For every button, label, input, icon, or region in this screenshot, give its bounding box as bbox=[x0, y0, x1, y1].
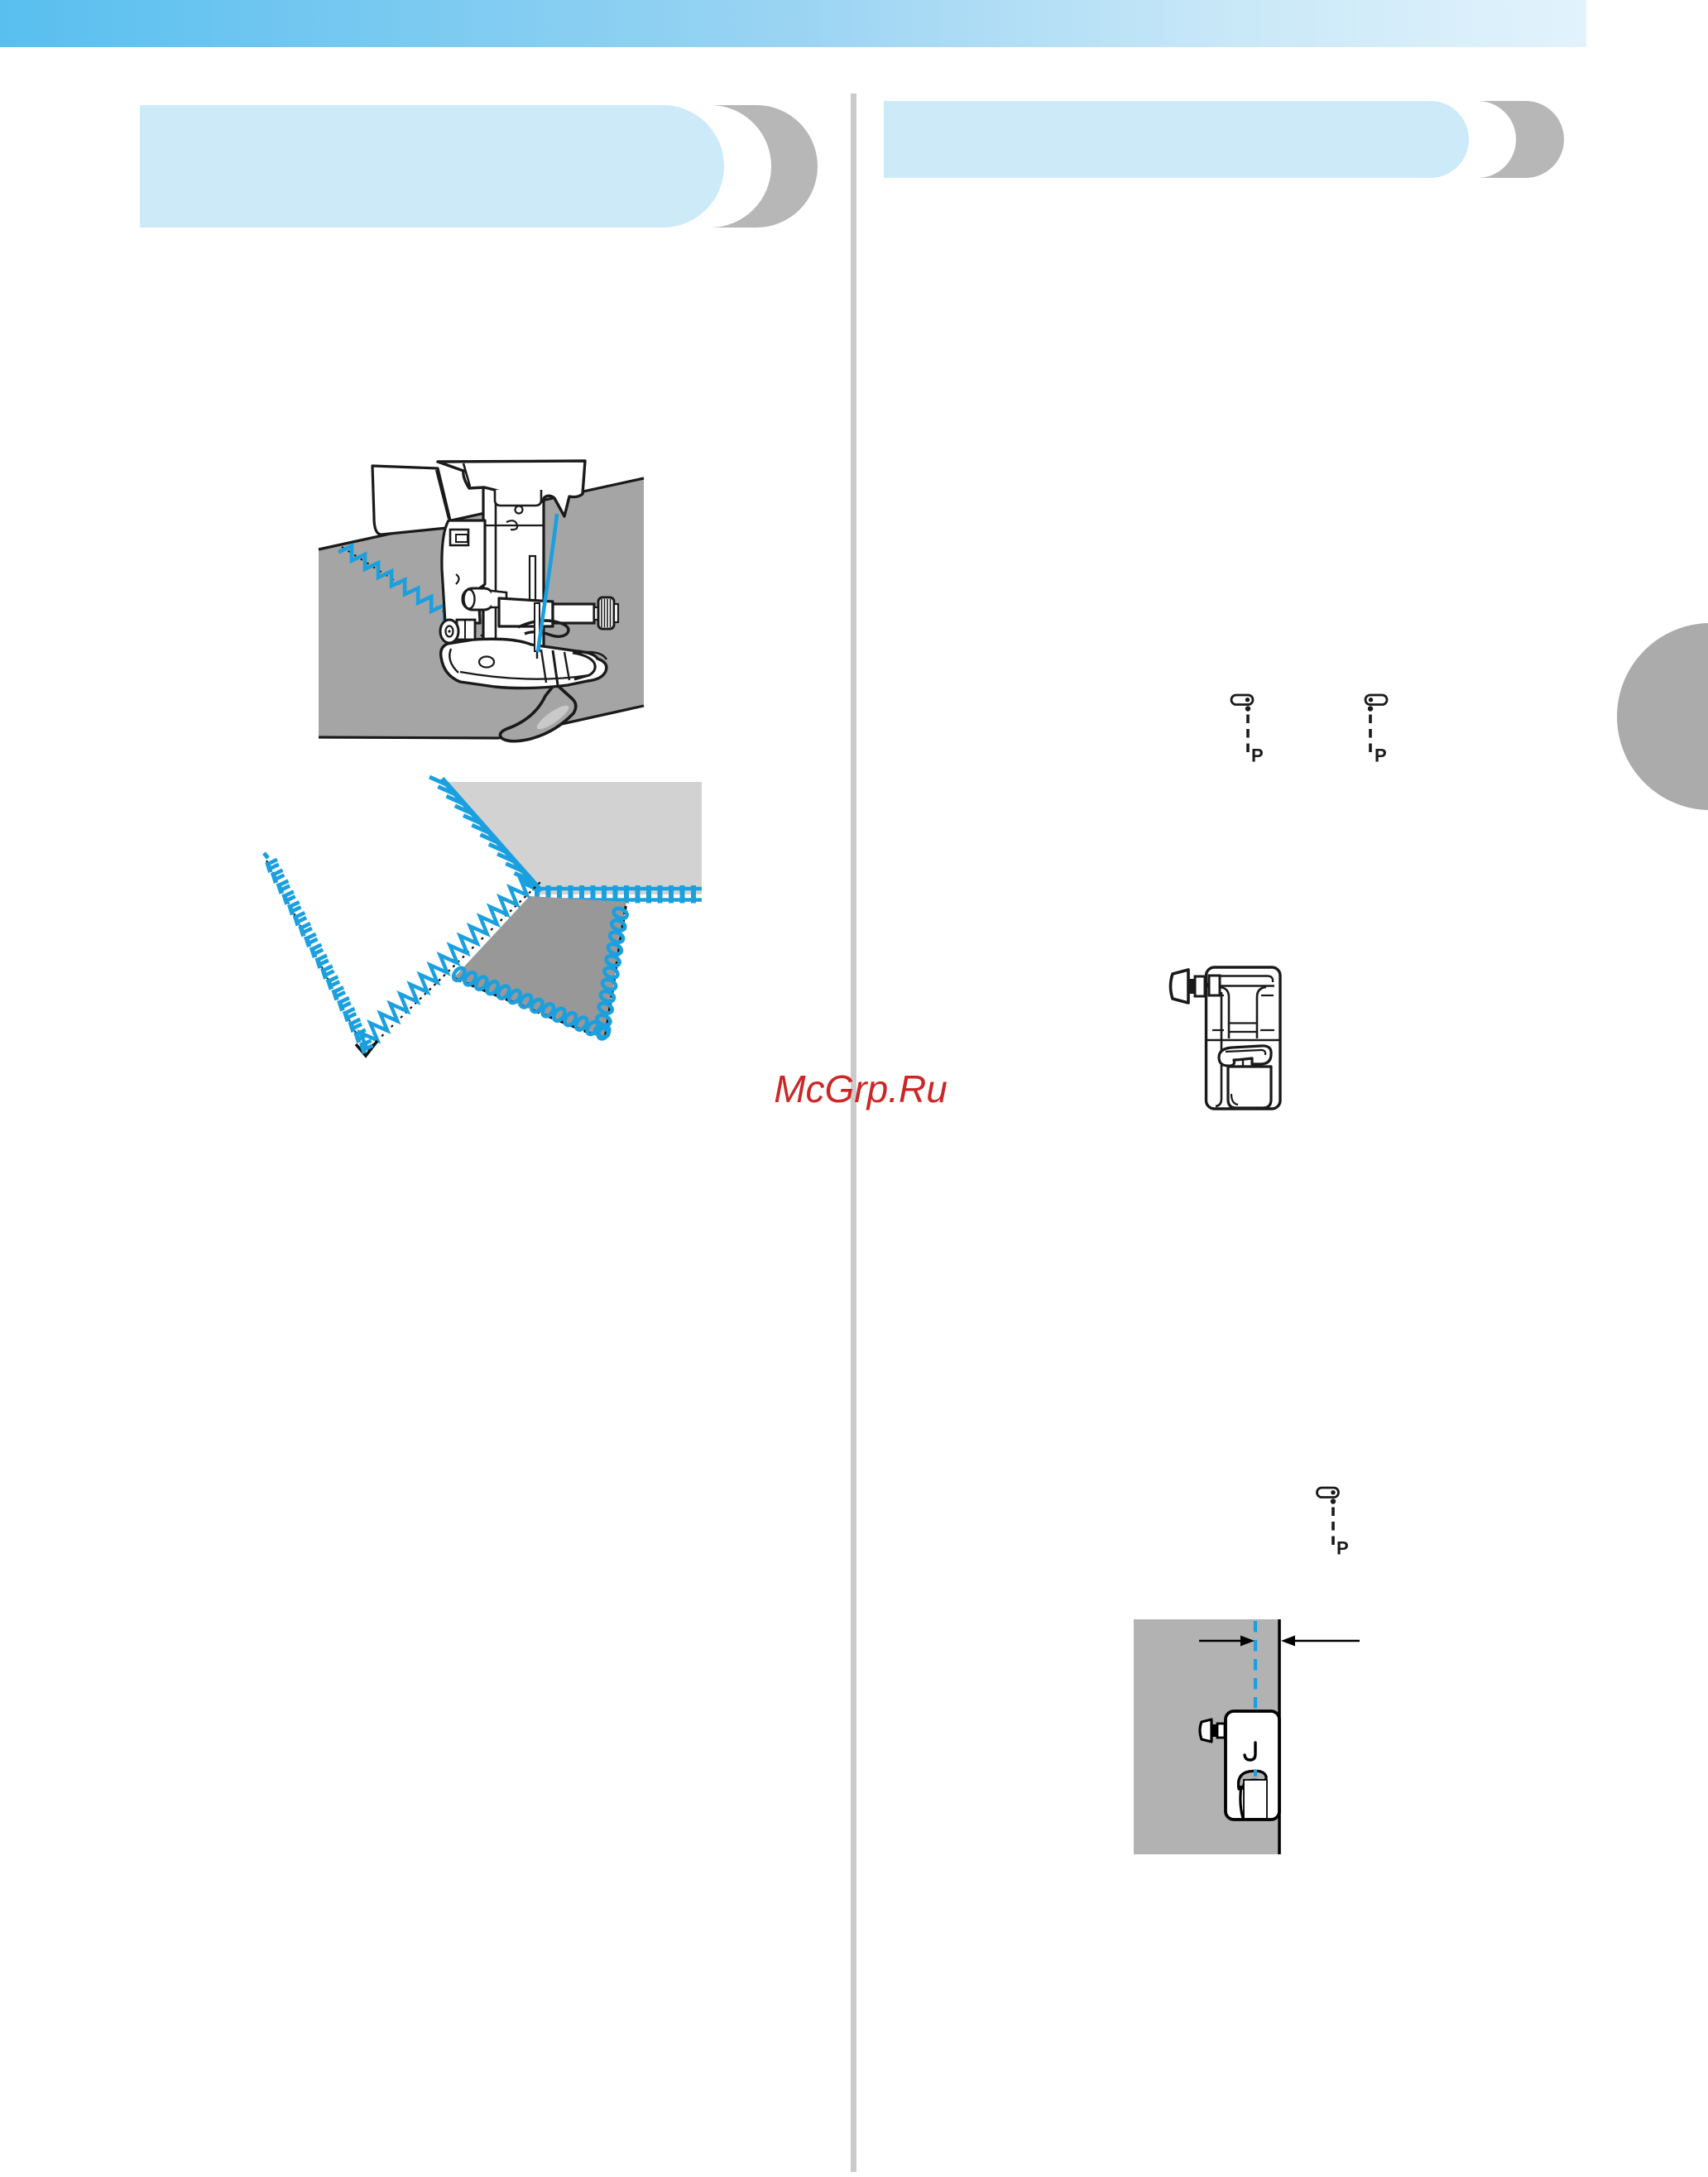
svg-text:P: P bbox=[1251, 746, 1264, 766]
svg-text:P: P bbox=[1375, 746, 1387, 766]
svg-text:P: P bbox=[1336, 1538, 1349, 1559]
